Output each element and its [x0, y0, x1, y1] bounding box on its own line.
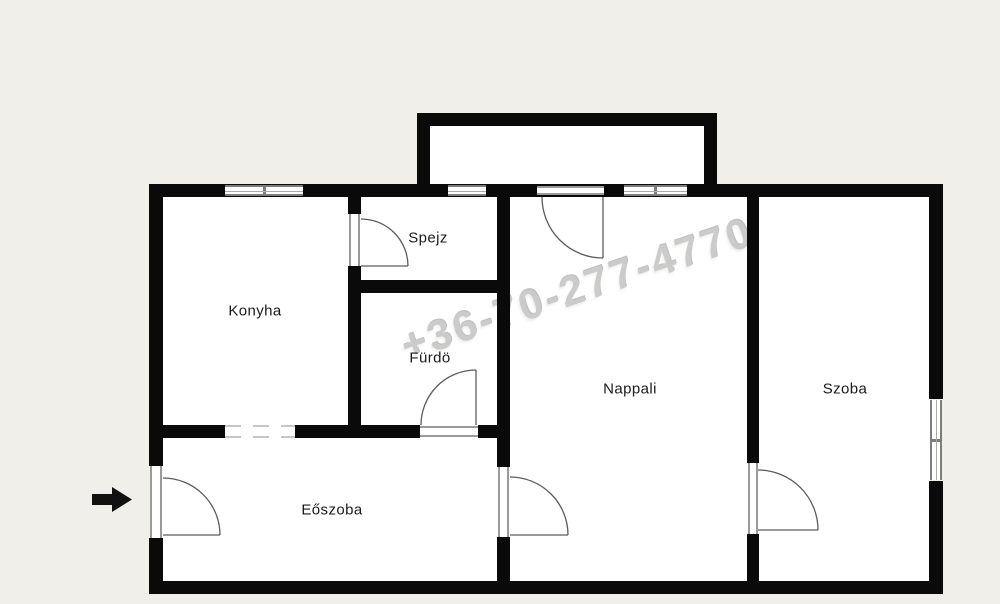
- wall-segment-eoszoba-top-c: [478, 425, 510, 438]
- window-nappali: [624, 185, 687, 196]
- door-threshold-nappali-szoba: [748, 463, 758, 534]
- entrance-arrow-icon: [92, 487, 132, 512]
- wall-segment-konyha-spejz-jamb: [348, 197, 361, 214]
- door-threshold-entrance: [150, 466, 162, 538]
- door-swing-nappali-szoba: [758, 462, 822, 532]
- door-swing-balcony: [539, 197, 605, 261]
- wall-segment-balcony-right: [704, 113, 717, 197]
- dashed-opening-konyha-eoszoba: [225, 425, 295, 438]
- wall-segment-nappali-szoba-lower: [747, 534, 759, 581]
- wall-segment-right-upper: [929, 184, 943, 399]
- window-szoba: [930, 400, 942, 480]
- window-spejz: [448, 185, 486, 196]
- wall-segment-eoszoba-top-a: [162, 425, 225, 438]
- room-label-szoba: Szoba: [823, 381, 868, 398]
- door-swing-spejz: [358, 213, 412, 270]
- wall-segment-spejz-furdo: [348, 280, 510, 293]
- room-label-furdo: Fürdö: [409, 350, 450, 367]
- door-threshold-spejz: [349, 214, 360, 266]
- door-swing-eoszoba-nappali: [510, 467, 572, 537]
- door-swing-entrance: [163, 467, 223, 537]
- wall-segment-center-lower: [497, 537, 510, 581]
- wall-segment-balcony-top: [417, 113, 717, 126]
- floor-plan: +36-70-277-4770: [0, 0, 1000, 604]
- room-label-eoszoba: Eőszoba: [301, 502, 362, 519]
- room-label-nappali: Nappali: [603, 381, 657, 398]
- door-swing-furdo: [419, 369, 479, 426]
- door-threshold-eoszoba-nappali: [498, 467, 509, 537]
- window-mullion: [932, 439, 940, 442]
- wall-segment-eoszoba-top-b: [295, 425, 420, 438]
- room-label-spejz: Spejz: [408, 230, 448, 247]
- window-mullion: [263, 187, 266, 194]
- wall-segment-nappali-szoba-upper: [747, 197, 759, 463]
- door-threshold-balcony: [537, 186, 604, 195]
- door-threshold-furdo: [420, 426, 478, 437]
- window-konyha: [225, 185, 303, 196]
- window-mullion: [654, 187, 657, 194]
- wall-segment-left-upper: [149, 184, 163, 466]
- wall-segment-bottom: [149, 581, 943, 594]
- room-label-konyha: Konyha: [228, 303, 281, 320]
- wall-segment-right-lower: [929, 481, 943, 594]
